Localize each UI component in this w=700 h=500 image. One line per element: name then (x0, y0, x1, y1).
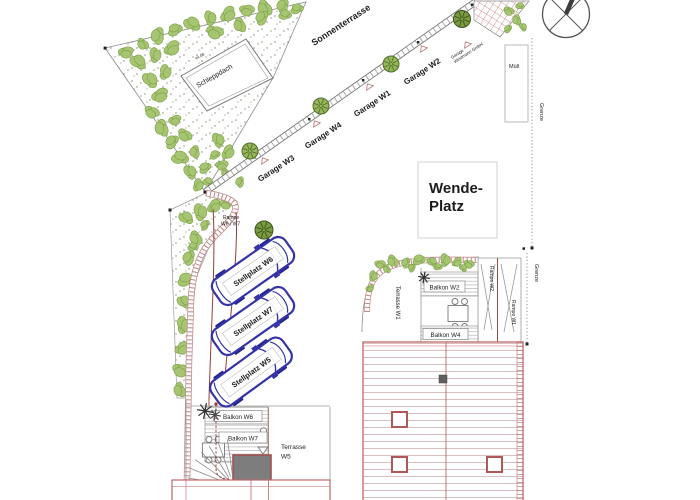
terrasse-w5-label-line2: W5 (281, 454, 291, 461)
walkway-node (417, 41, 419, 43)
right-building: Terrasse W1 Balkon W2 Balkon W4 Rampe W2… (362, 257, 523, 500)
shrub-icon (434, 263, 443, 270)
balkon-w2-label: Balkon W2 (430, 285, 460, 292)
tree-icon (383, 56, 399, 72)
tree-icon (313, 98, 329, 114)
parking-cars: Stellplatz W6Stellplatz W7Stellplatz W5 (204, 230, 300, 413)
rampe-w6-w7-label-line2: W6 / W7 (221, 222, 240, 228)
wendeplatz-box: Wende- Platz (418, 162, 497, 238)
wendeplatz-label-line2: Platz (429, 198, 464, 215)
balkon-w7-label: Balkon W7 (228, 436, 258, 443)
site-plan-page: Schleppdach 44.08 Garage W3 Garage W4 Ga… (0, 0, 700, 500)
muell-label: Müll (509, 64, 519, 70)
garage-w1-label: Garage W1 (352, 88, 392, 119)
tree-icon (255, 221, 273, 239)
skylight (487, 457, 502, 472)
rampe-w2-label: Rampe W2 (488, 266, 494, 291)
rampe-w1-label: Rampe W1 (510, 300, 516, 325)
muell-box: Müll (505, 45, 528, 122)
wendeplatz-label-line1: Wende- (429, 180, 483, 197)
walkway-node (471, 4, 473, 6)
garage-w2-label: Garage W2 (402, 56, 442, 87)
site-plan-drawing: Schleppdach 44.08 Garage W3 Garage W4 Ga… (0, 0, 700, 500)
boundary-line-right: Grenze (526, 253, 540, 346)
roof-shaft (439, 375, 447, 383)
boundary-node (104, 47, 107, 50)
tree-icon (454, 11, 471, 28)
left-building: Balkon W6 Balkon W7 Terrasse W5 (172, 400, 330, 500)
ramp-w1-strip: Rampe W1 (501, 258, 521, 342)
terrasse-w1-label: Terrasse W1 (394, 286, 400, 320)
skylight (392, 457, 407, 472)
compass-icon (543, 0, 590, 38)
grenze-right-label: Grenze (533, 264, 539, 282)
elevator-shaft (233, 455, 271, 482)
walkway-node (308, 118, 310, 120)
tree-icon (242, 143, 258, 159)
shrub-icon (412, 254, 426, 266)
balkon-w4-label: Balkon W4 (431, 332, 461, 339)
skylight (392, 412, 407, 427)
left-building-base (172, 480, 330, 500)
grenze-top-label: Grenze (538, 103, 544, 121)
terrasse-w5-label-line1: Terrasse (281, 444, 306, 451)
garage-w4-label: Garage W4 (303, 120, 343, 151)
right-building-roof (363, 342, 523, 500)
walkway-node (362, 79, 364, 81)
balkon-w4-furniture (448, 299, 468, 330)
garage-note-label: Garage Weidmann GmbH (450, 37, 484, 64)
balkon-w6-label: Balkon W6 (223, 414, 253, 421)
terrasse-w5-area: Terrasse W5 (281, 407, 330, 480)
boundary-node (169, 209, 172, 212)
shrub-icon (234, 175, 245, 188)
sonnenterrasse-label: Sonnenterrasse (310, 2, 373, 47)
